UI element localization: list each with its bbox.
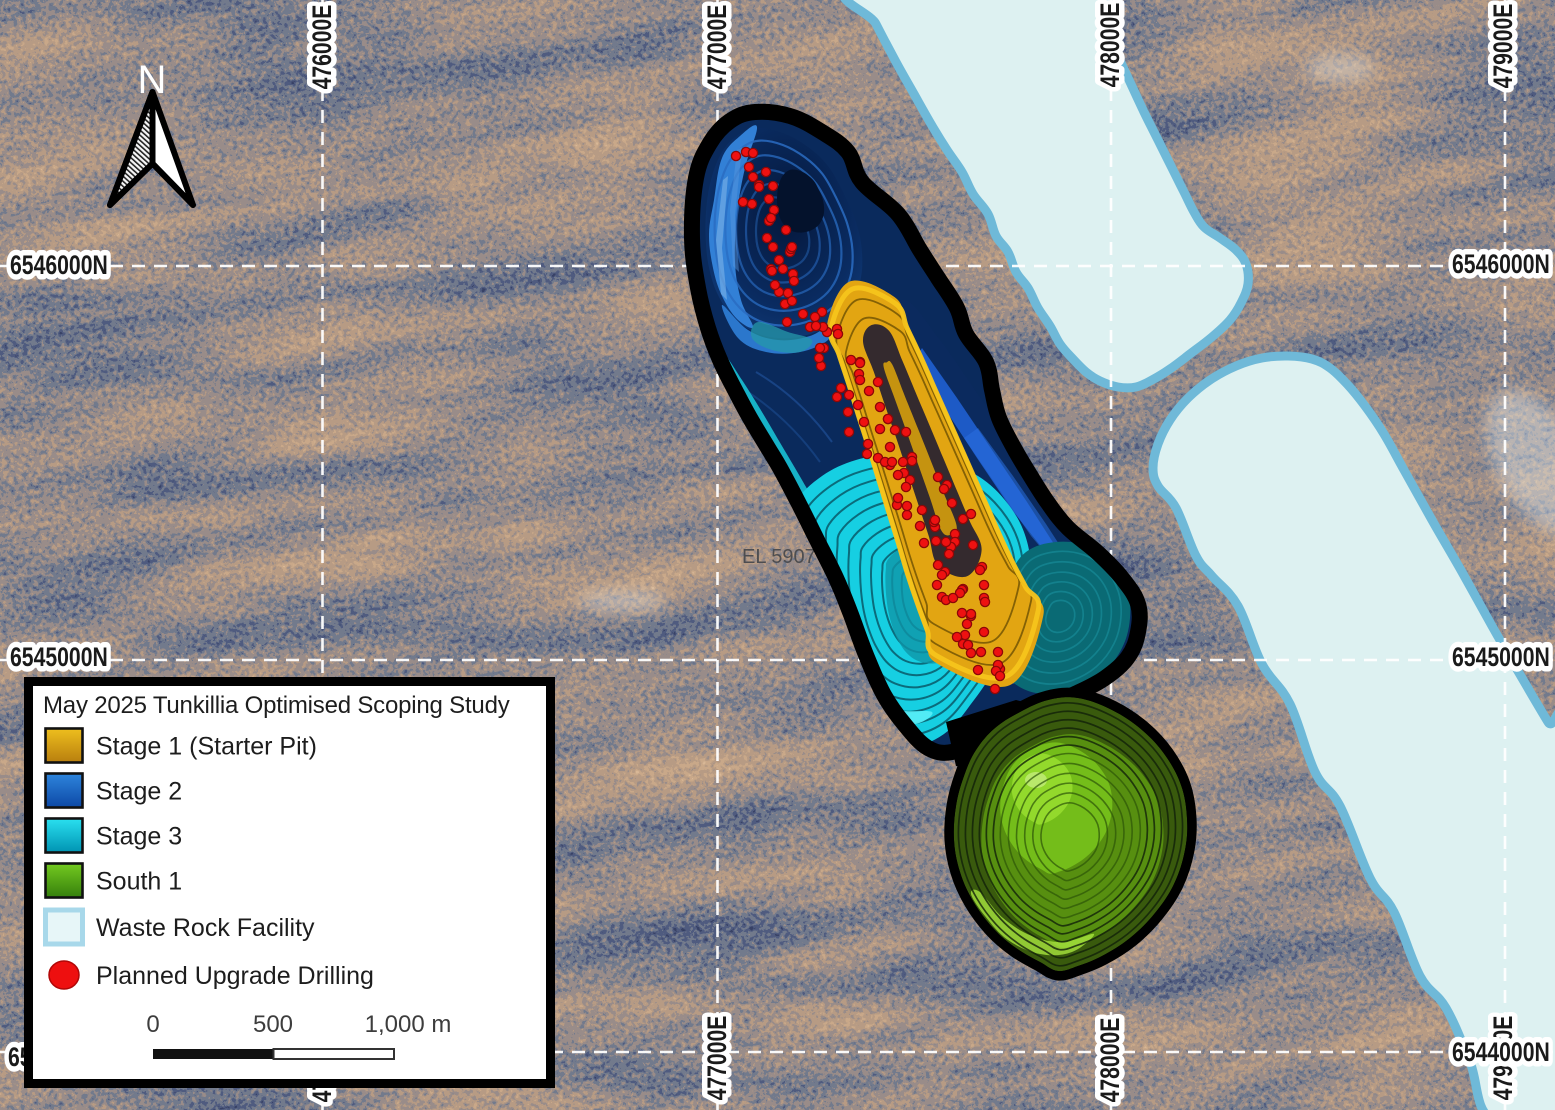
svg-text:Planned Upgrade Drilling: Planned Upgrade Drilling: [96, 962, 374, 990]
svg-text:EL 5907: EL 5907: [742, 546, 816, 568]
svg-text:Stage 3: Stage 3: [96, 823, 182, 851]
svg-text:6546000N: 6546000N: [1452, 250, 1550, 280]
svg-text:N: N: [138, 58, 167, 102]
svg-text:477000E: 477000E: [703, 1016, 733, 1101]
svg-text:Stage 2: Stage 2: [96, 778, 182, 806]
svg-text:478000E: 478000E: [1096, 1018, 1126, 1103]
svg-text:Waste Rock Facility: Waste Rock Facility: [96, 914, 315, 942]
svg-text:0: 0: [146, 1011, 159, 1038]
svg-text:477000E: 477000E: [703, 5, 733, 90]
svg-text:476000E: 476000E: [308, 5, 338, 90]
svg-text:6545000N: 6545000N: [10, 643, 108, 673]
svg-text:South 1: South 1: [96, 868, 182, 896]
svg-text:1,000 m: 1,000 m: [365, 1011, 452, 1038]
svg-text:479000E: 479000E: [1489, 4, 1519, 89]
svg-text:6545000N: 6545000N: [1452, 643, 1550, 673]
svg-text:478000E: 478000E: [1096, 3, 1126, 88]
svg-text:500: 500: [253, 1011, 293, 1038]
svg-text:6544000N: 6544000N: [1452, 1038, 1550, 1068]
svg-text:May 2025 Tunkillia Optimised S: May 2025 Tunkillia Optimised Scoping Stu…: [43, 692, 510, 719]
svg-text:6546000N: 6546000N: [10, 251, 108, 281]
svg-text:Stage 1 (Starter Pit): Stage 1 (Starter Pit): [96, 733, 317, 761]
